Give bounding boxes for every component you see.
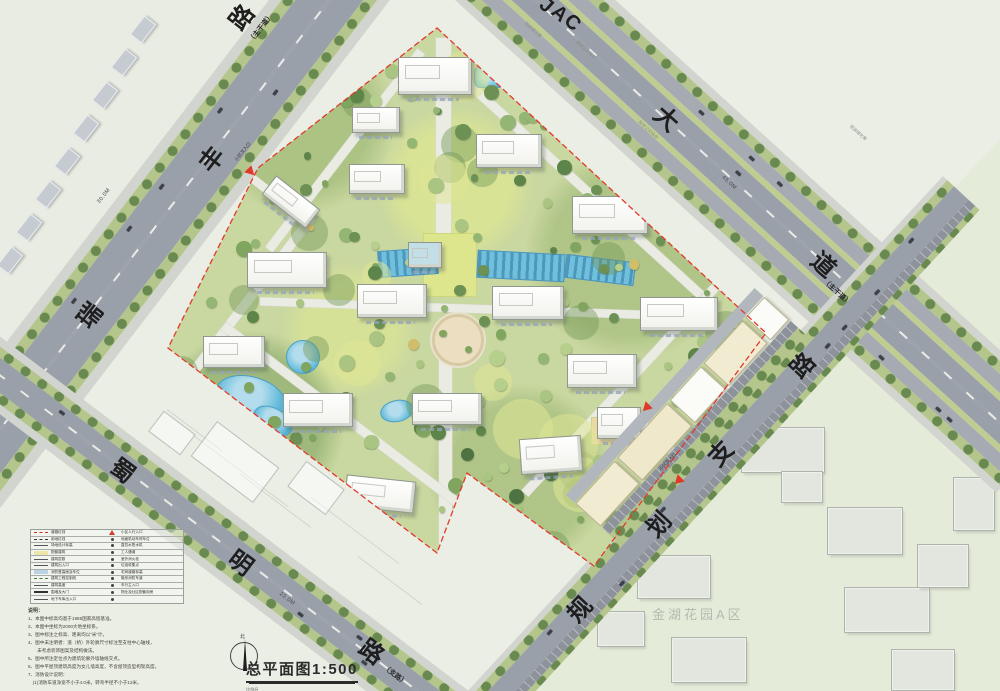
legend-label: 建筑出入口 — [51, 563, 103, 568]
legend-symbol-icon — [31, 551, 51, 555]
water-canal — [476, 250, 565, 283]
tree — [656, 236, 666, 246]
legend-label: 小区人行入口 — [121, 530, 183, 535]
tree — [251, 239, 260, 248]
legend-label: 建筑高度 — [51, 583, 103, 588]
tree — [471, 174, 478, 181]
residential-tower — [567, 354, 637, 388]
tree — [391, 541, 398, 548]
tree — [215, 401, 226, 412]
tree — [577, 516, 584, 523]
residential-tower — [352, 107, 400, 133]
tree — [265, 445, 276, 456]
tree — [301, 362, 311, 372]
tree — [455, 219, 469, 233]
legend-label: 建筑工程控制线 — [51, 576, 103, 581]
residential-tower — [349, 164, 405, 194]
internal-path — [439, 355, 452, 555]
legend-label: 物业及社区配套用房 — [121, 590, 183, 595]
legend-symbol-icon — [31, 585, 51, 586]
tree — [175, 370, 183, 378]
residential-tower — [492, 286, 564, 320]
note-line: 2、本图中坐标为2000大地坐标系。 — [28, 623, 258, 631]
legend-row: 建筑高度 车行主入口 — [31, 583, 183, 590]
tree — [499, 463, 509, 473]
legend-label: 直饮水售水机 — [121, 543, 183, 548]
tree — [512, 504, 523, 515]
residential-tower — [412, 393, 482, 425]
legend-symbol-icon — [103, 558, 121, 561]
tree — [494, 378, 507, 391]
note-line: 4、图中未注明者：道（桥）外轮廓尺寸标注至支柱中心轴线， — [28, 639, 258, 647]
residential-tower — [344, 474, 417, 513]
tree — [525, 109, 539, 123]
neighbor-building — [782, 472, 822, 502]
legend-row: 道路红线 小区人行入口 — [31, 530, 183, 537]
legend-label: 建筑层数 — [51, 557, 103, 562]
tree — [322, 180, 329, 187]
legend-symbol-icon — [103, 530, 121, 535]
legend-symbol-icon — [103, 564, 121, 567]
legend-table: 道路红线 小区人行入口 用地红线 地面机动车停车位 场地设计标高 直饮水售水机 … — [30, 529, 184, 604]
tree — [433, 107, 440, 114]
tree — [484, 473, 493, 482]
sketch-line — [358, 556, 422, 605]
tree — [538, 353, 549, 364]
tree — [557, 160, 571, 174]
legend-row: 建筑工程控制线 隐形消防车道 — [31, 576, 183, 583]
notes-heading: 说明： — [28, 607, 258, 615]
tree — [339, 355, 355, 371]
tree — [476, 426, 486, 436]
note-line: 未考虑装饰图案及结构做法。 — [28, 647, 258, 655]
legend-row: 建筑出入口 垃圾收集点 — [31, 563, 183, 570]
tree — [309, 434, 316, 441]
tree-canopy — [449, 513, 484, 548]
tree — [325, 551, 336, 562]
legend-symbol-icon — [31, 570, 51, 574]
legend-symbol-icon — [103, 584, 121, 587]
tree — [509, 489, 524, 504]
note-line: 1、本图中标高均基于1985国家高程基准。 — [28, 615, 258, 623]
tree — [371, 241, 379, 249]
tree — [368, 266, 382, 280]
residential-tower — [203, 336, 265, 368]
tree — [496, 329, 506, 339]
tree — [664, 362, 673, 371]
tree — [578, 302, 588, 312]
tree — [609, 313, 619, 323]
tree — [479, 316, 490, 327]
tree — [407, 138, 416, 147]
legend-row: 配套建筑 工人通道 — [31, 550, 183, 557]
residential-tower — [640, 297, 718, 331]
notes-block: 说明： 1、本图中标高均基于1985国家高程基准。2、本图中坐标为2000大地坐… — [28, 607, 258, 687]
legend-label: 隐形消防车道 — [121, 576, 183, 581]
legend-symbol-icon — [31, 559, 51, 560]
tree — [540, 390, 552, 402]
drawing-title-block: 总平面图1:500 比例尺 — [246, 658, 358, 691]
legend-row: 围墙及大门 物业及社区配套用房 — [31, 589, 183, 596]
legend-symbol-icon — [103, 551, 121, 554]
neighbor-building — [828, 508, 902, 554]
legend-label: 消防登高面及车位 — [51, 570, 103, 575]
neighbor-building — [845, 588, 929, 632]
legend-symbol-icon — [103, 571, 121, 574]
tree — [290, 432, 302, 444]
legend-row: 地下车库出入口 — [31, 596, 183, 603]
legend-label: 宅间道路标高 — [121, 570, 183, 575]
tree — [472, 508, 482, 518]
residential-tower — [476, 134, 542, 168]
tree — [364, 435, 379, 450]
lawn-patch — [453, 503, 505, 555]
tree — [206, 297, 217, 308]
clubhouse — [408, 242, 442, 268]
residential-tower — [357, 284, 427, 318]
tree — [439, 330, 446, 337]
drawing-title: 总平面图1:500 — [246, 658, 358, 683]
drawing-subtitle: 比例尺 — [246, 687, 358, 691]
tree — [448, 478, 463, 493]
legend-label: 地下车库出入口 — [51, 597, 103, 602]
tree — [428, 178, 443, 193]
legend-label: 车行主入口 — [121, 583, 183, 588]
central-plaza — [432, 314, 484, 366]
tree — [489, 350, 505, 366]
tree — [244, 382, 254, 392]
tree — [455, 124, 471, 140]
note-line: 6、图中平屋顶建筑高度为女儿墙高度，不含屋顶造型构架高度。 — [28, 663, 258, 671]
legend-label: 垃圾收集点 — [121, 563, 183, 568]
legend-label: 用地红线 — [51, 537, 103, 542]
tree — [273, 479, 286, 492]
legend-label: 道路红线 — [51, 530, 103, 535]
tree — [247, 311, 259, 323]
note-line: (1)消防车道净宽不小于4.0米，转弯半径不小于12米。 — [28, 679, 258, 687]
note-line: 5、图中所注定位点为建筑轮廓外墙轴线交点。 — [28, 655, 258, 663]
tree — [514, 175, 526, 187]
tree — [591, 185, 601, 195]
tree — [408, 339, 420, 351]
tree — [356, 62, 365, 71]
tree — [700, 52, 706, 58]
tree — [524, 92, 534, 102]
legend-symbol-icon — [31, 578, 51, 579]
legend-row: 消防登高面及车位 宅间道路标高 — [31, 570, 183, 577]
residential-tower — [398, 57, 472, 95]
tree — [570, 242, 580, 252]
tree — [629, 259, 640, 270]
tree — [454, 285, 466, 297]
residential-tower — [572, 196, 648, 234]
tree — [500, 115, 516, 131]
residential-tower — [519, 435, 583, 475]
tree — [370, 95, 381, 106]
tree — [304, 152, 311, 159]
legend-label: 配套建筑 — [51, 550, 103, 555]
tree — [191, 467, 206, 482]
legend-symbol-icon — [31, 532, 51, 533]
legend-row: 建筑层数 室外消火栓 — [31, 556, 183, 563]
tree-canopy — [323, 274, 355, 306]
tree — [434, 555, 444, 565]
legend-label: 围墙及大门 — [51, 590, 103, 595]
legend-symbol-icon — [103, 538, 121, 541]
lawn-patch — [419, 155, 468, 204]
legend-label: 场地设计标高 — [51, 543, 103, 548]
tree — [543, 198, 552, 207]
residential-tower — [283, 393, 353, 427]
tree — [385, 64, 399, 78]
tree — [526, 92, 541, 107]
legend-symbol-icon — [103, 577, 121, 580]
tree — [732, 85, 739, 92]
legend-label: 室外消火栓 — [121, 557, 183, 562]
note-line: 7、消防设计说明： — [28, 671, 258, 679]
legend-symbol-icon — [103, 544, 121, 547]
site-plan-canvas: 瑞 丰 路 （主干道） J A C 大 道 （主干道） 蜀 明 路 （支路） 规… — [0, 0, 1000, 691]
tree — [349, 232, 359, 242]
future-building-outline — [148, 411, 196, 456]
legend-row: 场地设计标高 直饮水售水机 — [31, 543, 183, 550]
legend-label: 工人通道 — [121, 550, 183, 555]
tree — [540, 121, 548, 129]
residential-tower — [247, 252, 327, 288]
legend-symbol-icon — [31, 545, 51, 546]
note-line: 3、图中标注之标高、距离均以“米”计。 — [28, 631, 258, 639]
tree — [484, 85, 499, 100]
legend-label: 地面机动车停车位 — [121, 537, 183, 542]
legend-symbol-icon — [31, 565, 51, 566]
tree — [672, 207, 678, 213]
tree-canopy — [166, 356, 198, 388]
tree — [465, 346, 472, 353]
tree — [461, 448, 474, 461]
tree-canopy — [536, 531, 571, 566]
neighbor-building — [672, 638, 746, 682]
tree — [416, 360, 424, 368]
neighbor-building — [918, 545, 968, 587]
legend-symbol-icon — [31, 539, 51, 540]
legend-symbol-icon — [103, 591, 121, 594]
tree-canopy — [303, 336, 329, 362]
tree — [369, 331, 384, 346]
tree — [473, 233, 482, 242]
tree — [173, 392, 180, 399]
tree — [385, 372, 394, 381]
legend-symbol-icon — [31, 591, 51, 593]
tree — [296, 500, 305, 509]
neighbor-building — [598, 612, 644, 646]
tree — [350, 502, 359, 511]
road-annotation: 现状绿化带 — [848, 124, 868, 142]
legend-symbol-icon — [31, 599, 51, 600]
tree — [268, 416, 280, 428]
legend-row: 用地红线 地面机动车停车位 — [31, 537, 183, 544]
neighbor-area-label: 金湖花园A区 — [652, 604, 782, 623]
neighbor-building — [892, 650, 954, 690]
tree — [599, 264, 609, 274]
legend-symbol-icon — [103, 598, 121, 601]
